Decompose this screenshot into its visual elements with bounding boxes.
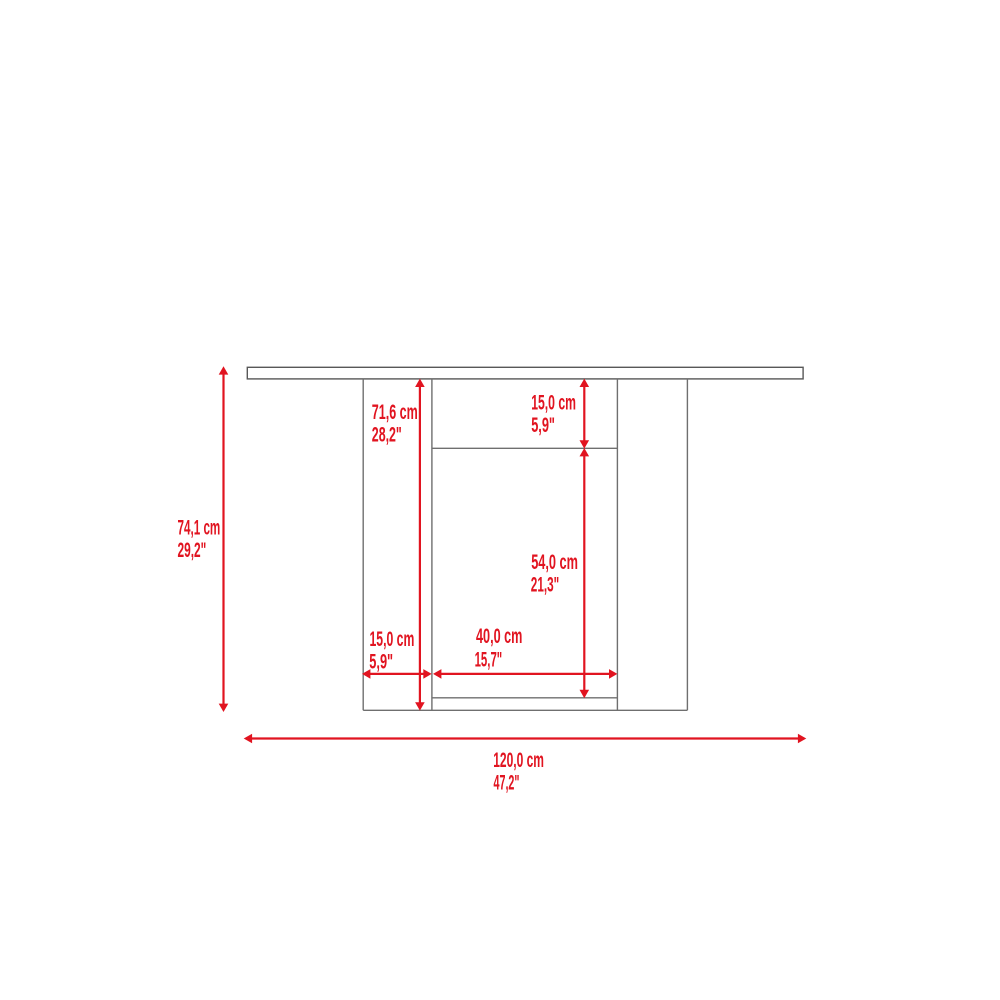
svg-text:5,9": 5,9"	[369, 651, 393, 674]
svg-text:15,7": 15,7"	[475, 648, 503, 671]
svg-text:120,0 cm: 120,0 cm	[493, 749, 544, 772]
svg-text:74,1 cm: 74,1 cm	[178, 516, 221, 539]
svg-text:15,0 cm: 15,0 cm	[370, 628, 415, 651]
svg-text:54,0 cm: 54,0 cm	[531, 551, 578, 574]
svg-text:21,3": 21,3"	[531, 573, 559, 596]
svg-text:29,2": 29,2"	[178, 539, 207, 562]
svg-text:40,0 cm: 40,0 cm	[476, 625, 522, 648]
svg-text:5,9": 5,9"	[531, 414, 555, 437]
svg-text:71,6 cm: 71,6 cm	[372, 401, 418, 424]
svg-text:15,0 cm: 15,0 cm	[531, 391, 576, 414]
svg-text:28,2": 28,2"	[372, 424, 402, 447]
svg-text:47,2": 47,2"	[494, 772, 520, 795]
